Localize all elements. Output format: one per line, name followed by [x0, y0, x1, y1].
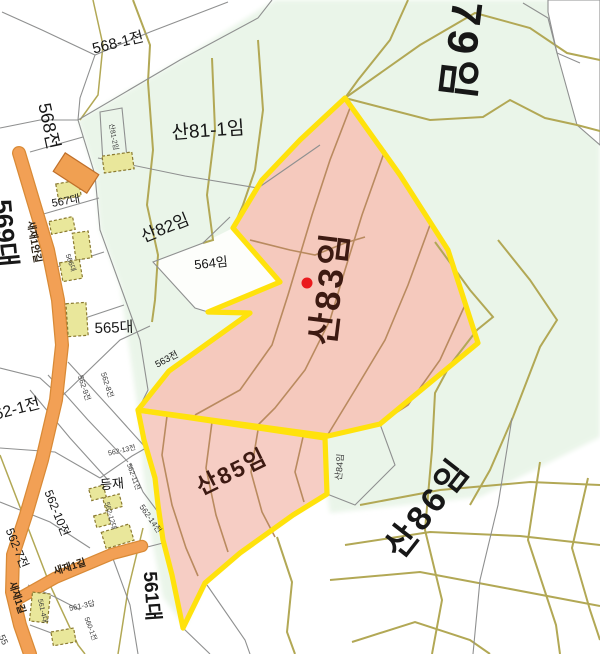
parcel-label-569: 569대 — [0, 198, 21, 267]
cadastral-map-canvas[interactable]: 568-1전 568전 569대 산81-1임 산81-2임 산82임 산79임… — [0, 0, 600, 654]
parcel-label-565: 565대 — [94, 320, 133, 336]
parcel-label-san81-1: 산81-1임 — [171, 119, 245, 143]
map-layers — [0, 0, 600, 654]
parcel-label-564: 564임 — [194, 255, 229, 271]
parcel-label-561: 561대 — [140, 571, 162, 621]
label-deungjae: 등재 — [100, 476, 125, 491]
